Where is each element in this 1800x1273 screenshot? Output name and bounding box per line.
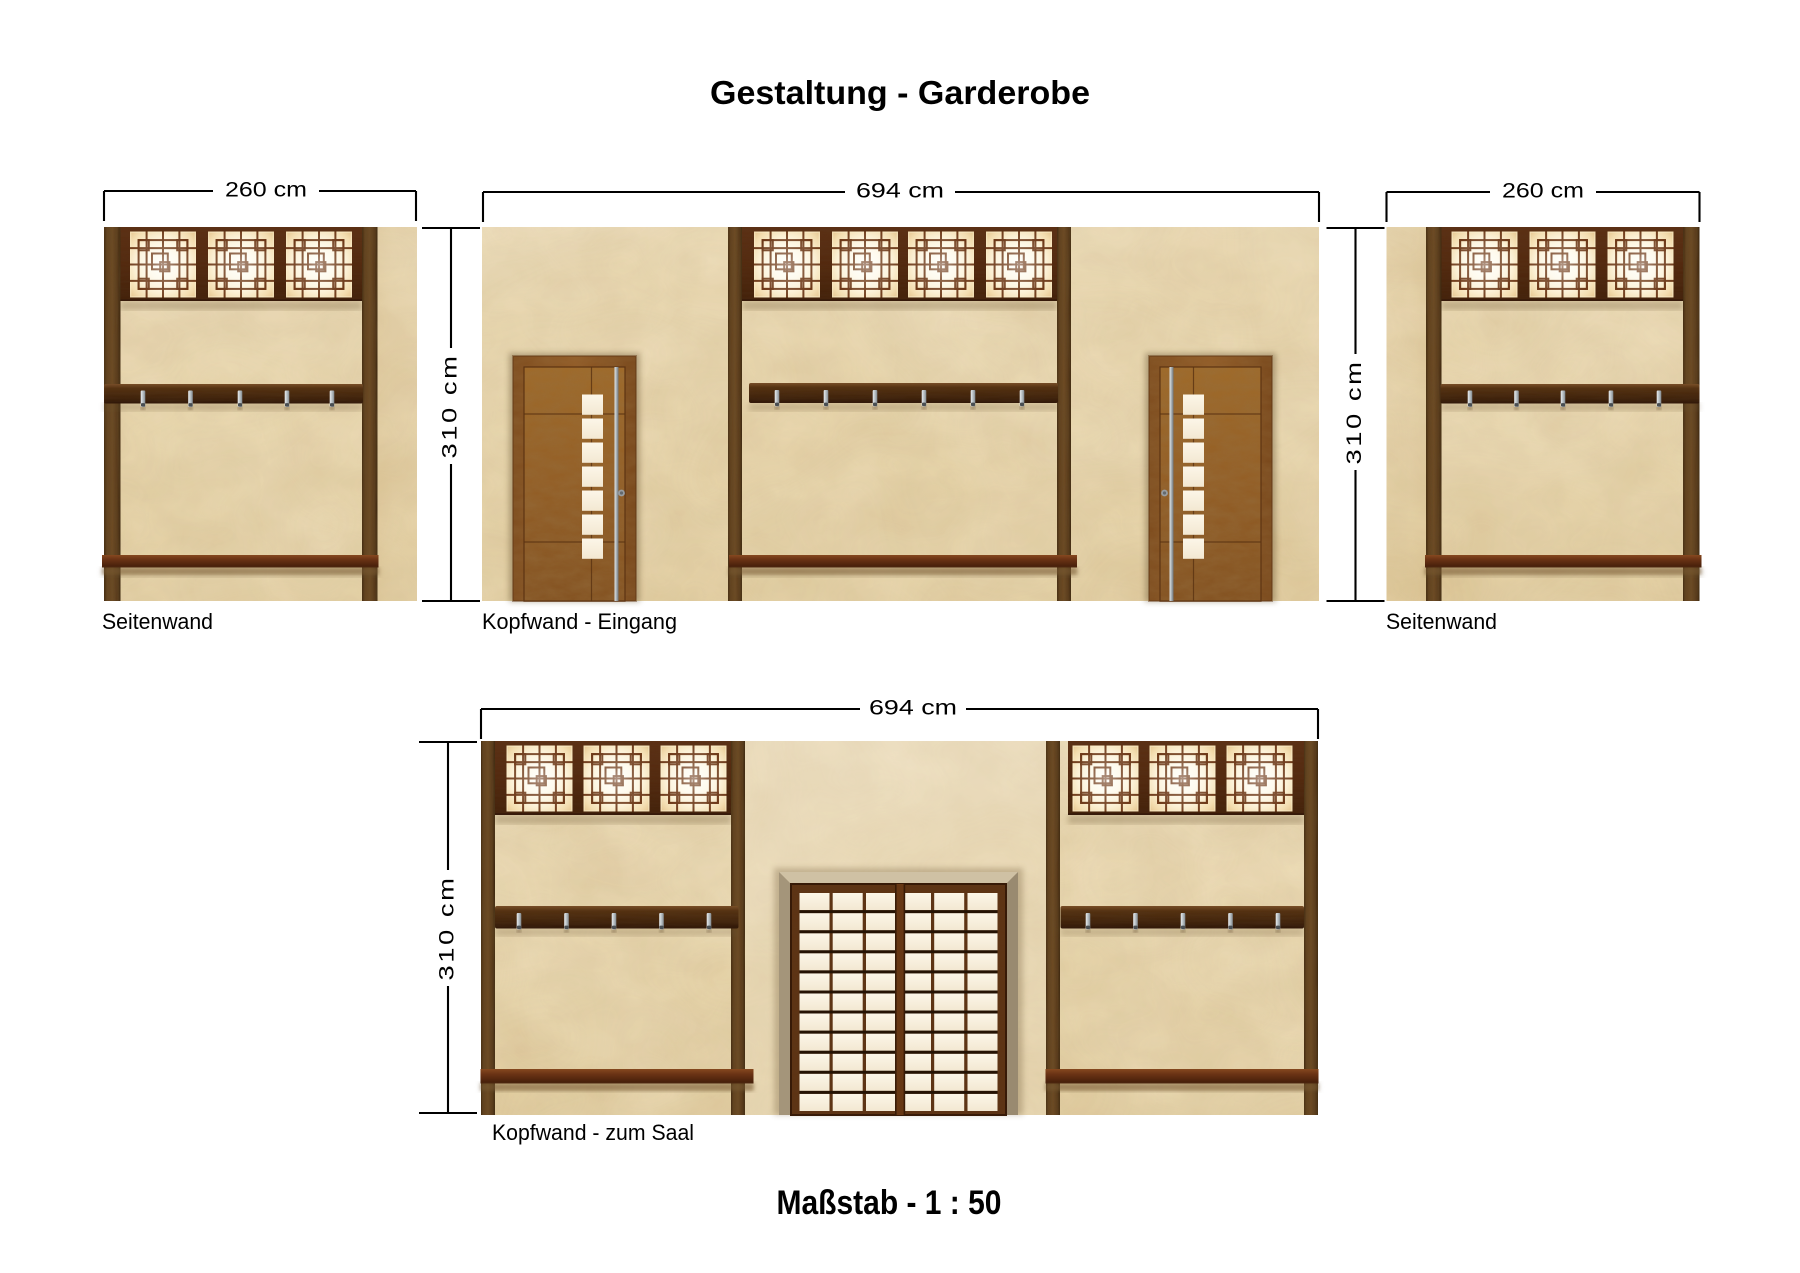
svg-text:Maßstab - 1 : 50: Maßstab - 1 : 50 (777, 1184, 1002, 1222)
svg-text:Kopfwand - zum Saal: Kopfwand - zum Saal (492, 1120, 694, 1145)
svg-text:310 cm: 310 cm (435, 876, 459, 981)
svg-text:Gestaltung - Garderobe: Gestaltung - Garderobe (710, 74, 1090, 111)
svg-text:310 cm: 310 cm (1342, 360, 1366, 465)
svg-text:310 cm: 310 cm (438, 354, 462, 459)
svg-text:Seitenwand: Seitenwand (1386, 609, 1497, 634)
svg-text:260 cm: 260 cm (225, 178, 307, 202)
svg-text:Seitenwand: Seitenwand (102, 609, 213, 634)
svg-text:694 cm: 694 cm (856, 179, 944, 203)
svg-text:Kopfwand - Eingang: Kopfwand - Eingang (482, 609, 677, 634)
svg-text:260 cm: 260 cm (1502, 179, 1584, 203)
svg-text:694 cm: 694 cm (869, 696, 957, 720)
